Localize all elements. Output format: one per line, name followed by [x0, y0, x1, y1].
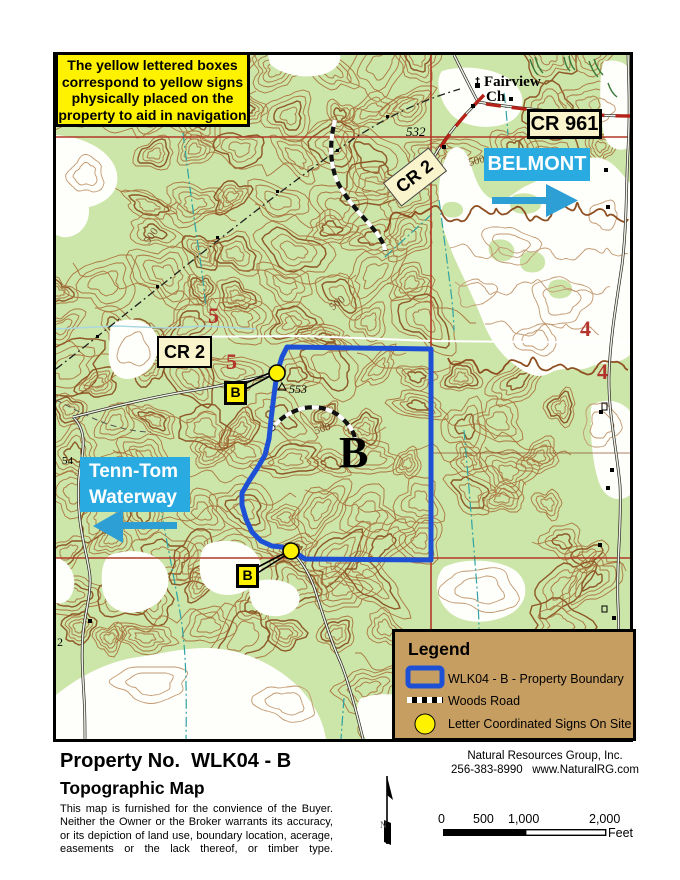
svg-text:553: 553: [289, 382, 307, 396]
svg-text:5: 5: [226, 349, 237, 374]
svg-text:Ch: Ch: [486, 89, 506, 105]
svg-text:N: N: [380, 820, 387, 830]
svg-text:B: B: [339, 428, 368, 477]
svg-text:Fairview: Fairview: [484, 74, 541, 90]
svg-text:4: 4: [580, 316, 591, 341]
svg-text:532: 532: [406, 124, 426, 139]
svg-text:4: 4: [597, 359, 608, 384]
svg-text:5: 5: [208, 303, 219, 328]
svg-text:54: 54: [62, 455, 74, 467]
svg-text:2: 2: [57, 635, 63, 649]
